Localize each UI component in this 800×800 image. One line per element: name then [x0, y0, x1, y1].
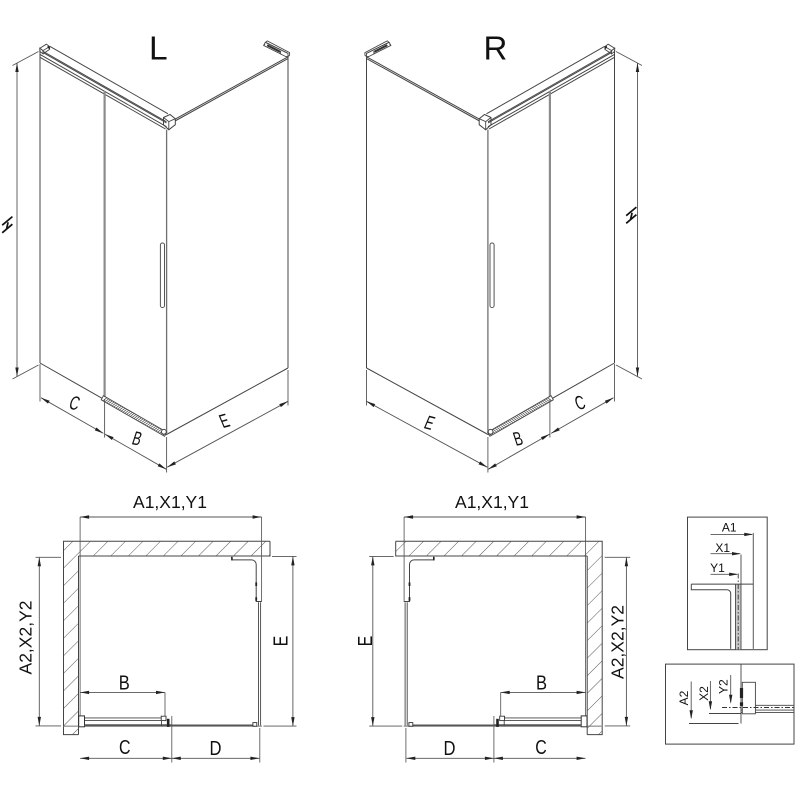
- svg-text:Y2: Y2: [716, 679, 730, 694]
- svg-text:C: C: [535, 737, 547, 759]
- svg-text:D: D: [210, 738, 222, 760]
- svg-text:A1,X1,Y1: A1,X1,Y1: [455, 492, 529, 512]
- svg-text:D: D: [444, 738, 456, 760]
- svg-text:X2: X2: [697, 686, 711, 701]
- svg-text:L: L: [149, 30, 168, 67]
- svg-text:B: B: [536, 673, 547, 695]
- svg-text:A2,X2,Y2: A2,X2,Y2: [16, 601, 36, 675]
- svg-text:A2: A2: [677, 690, 691, 705]
- svg-text:X1: X1: [715, 541, 730, 555]
- svg-text:C: C: [119, 737, 131, 759]
- svg-text:A2,X2,Y2: A2,X2,Y2: [608, 605, 628, 679]
- svg-text:E: E: [355, 636, 377, 647]
- svg-text:A1: A1: [722, 521, 737, 535]
- svg-text:R: R: [484, 30, 508, 67]
- svg-text:B: B: [119, 673, 130, 695]
- svg-text:E: E: [271, 636, 293, 647]
- svg-text:A1,X1,Y1: A1,X1,Y1: [133, 492, 207, 512]
- svg-text:Y1: Y1: [710, 561, 725, 575]
